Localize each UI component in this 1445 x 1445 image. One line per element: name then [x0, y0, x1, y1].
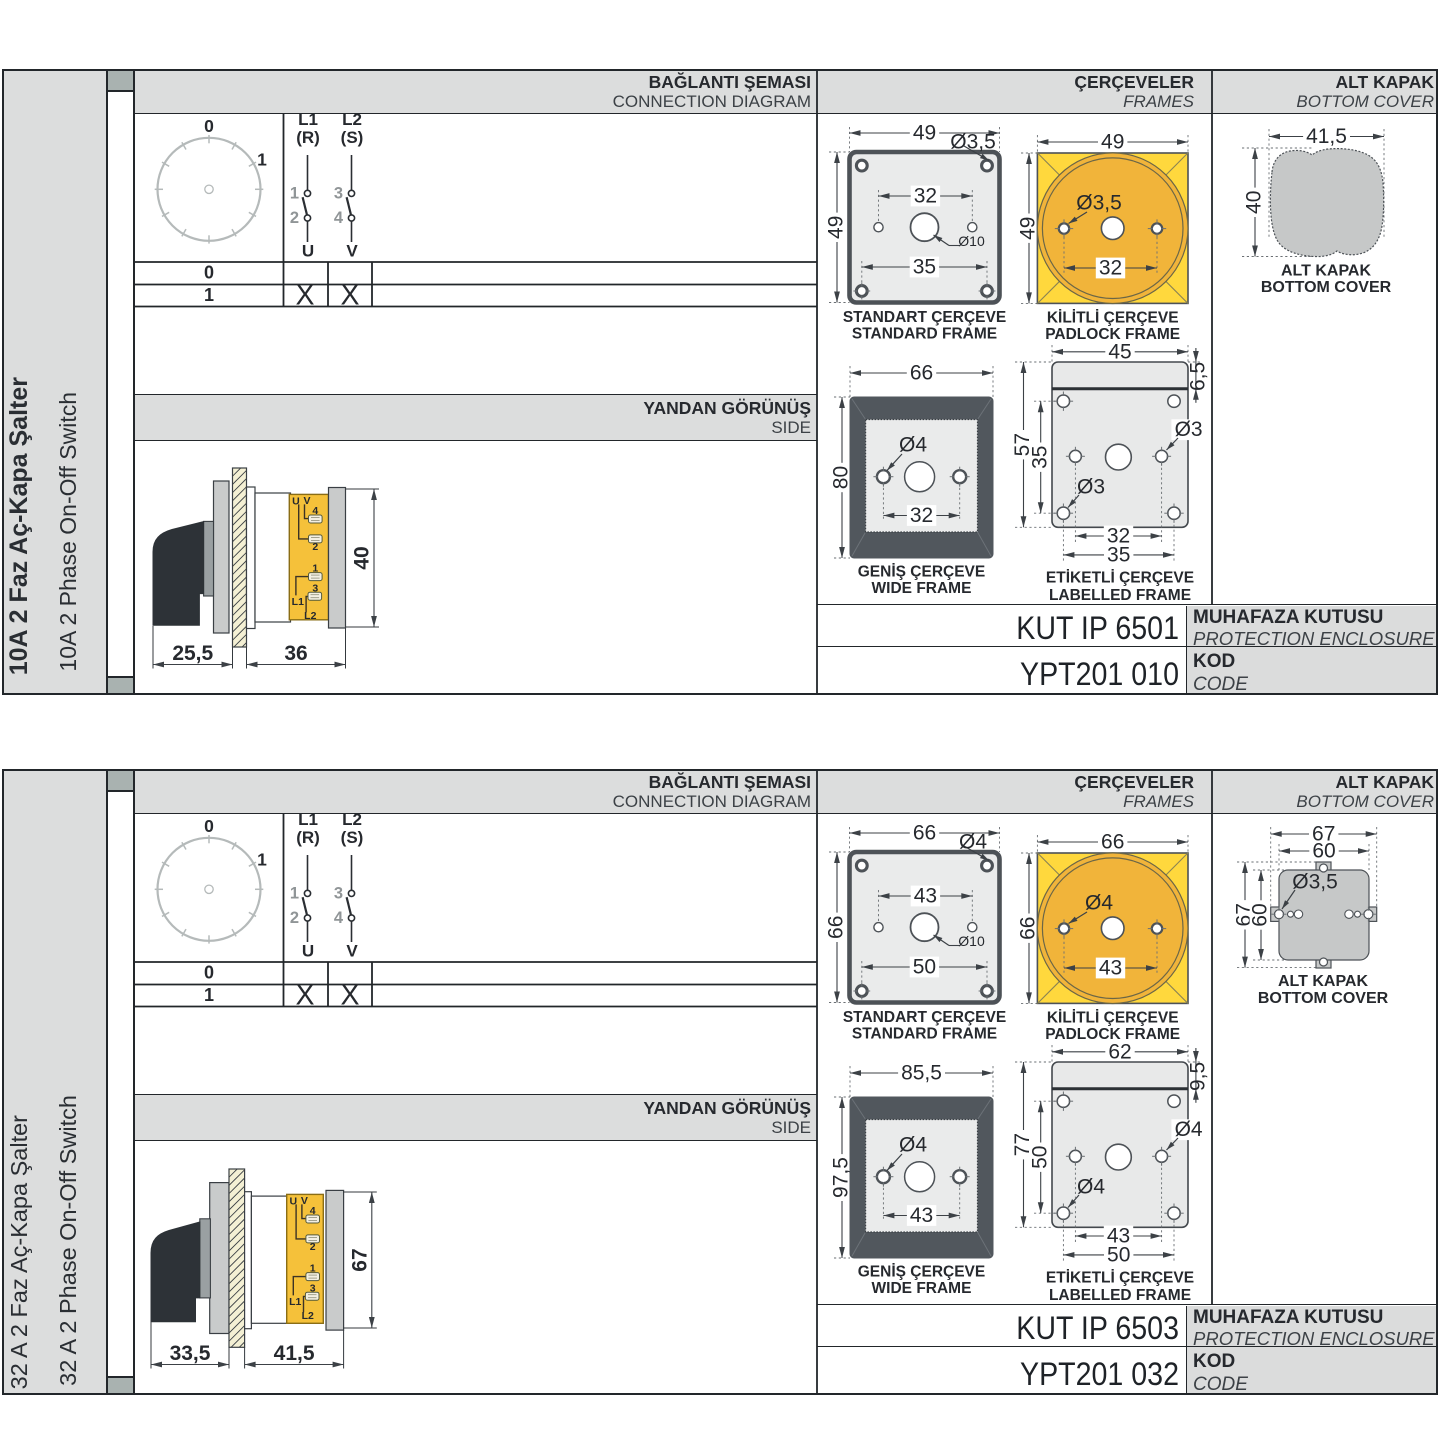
- svg-text:49: 49: [1017, 217, 1040, 240]
- svg-text:1: 1: [290, 184, 299, 202]
- svg-text:L2: L2: [342, 110, 362, 129]
- svg-text:V: V: [346, 942, 358, 961]
- svg-text:0: 0: [204, 116, 214, 136]
- svg-text:6,5: 6,5: [1187, 362, 1210, 391]
- svg-text:Ø4: Ø4: [899, 1134, 927, 1157]
- svg-text:Ø4: Ø4: [959, 831, 987, 854]
- svg-text:L1: L1: [292, 596, 304, 608]
- svg-text:3: 3: [334, 884, 343, 902]
- svg-text:Ø3: Ø3: [1077, 475, 1105, 498]
- svg-text:50: 50: [1029, 1146, 1052, 1169]
- svg-text:35: 35: [1107, 543, 1130, 566]
- svg-text:62: 62: [1108, 1040, 1131, 1063]
- svg-text:GENİŞ ÇERÇEVE: GENİŞ ÇERÇEVE: [858, 564, 985, 581]
- svg-text:1: 1: [312, 562, 318, 574]
- svg-text:L2: L2: [342, 810, 362, 829]
- svg-text:(S): (S): [341, 828, 364, 847]
- svg-text:BOTTOM COVER: BOTTOM COVER: [1261, 279, 1392, 296]
- svg-text:STANDARD FRAME: STANDARD FRAME: [852, 326, 997, 343]
- svg-text:(R): (R): [296, 828, 320, 847]
- svg-text:X: X: [340, 980, 359, 1012]
- svg-text:STANDART ÇERÇEVE: STANDART ÇERÇEVE: [843, 1009, 1006, 1026]
- svg-text:4: 4: [334, 909, 344, 927]
- svg-text:40: 40: [1243, 191, 1266, 214]
- svg-text:3: 3: [310, 1283, 316, 1295]
- svg-text:4: 4: [312, 505, 318, 517]
- svg-text:LABELLED FRAME: LABELLED FRAME: [1049, 1287, 1191, 1304]
- svg-text:33,5: 33,5: [170, 1342, 211, 1365]
- svg-text:3: 3: [312, 583, 318, 595]
- svg-text:97,5: 97,5: [830, 1157, 853, 1198]
- svg-text:KİLİTLİ ÇERÇEVE: KİLİTLİ ÇERÇEVE: [1047, 310, 1179, 327]
- svg-text:0: 0: [204, 816, 214, 836]
- svg-text:L1: L1: [289, 1296, 301, 1308]
- svg-text:L2: L2: [302, 1310, 314, 1322]
- svg-text:2: 2: [290, 909, 299, 927]
- svg-text:1: 1: [204, 985, 214, 1005]
- svg-text:32: 32: [914, 185, 937, 208]
- svg-text:35: 35: [913, 256, 936, 279]
- svg-text:60: 60: [1249, 903, 1272, 926]
- svg-text:Ø4: Ø4: [1085, 892, 1113, 915]
- svg-text:U: U: [302, 242, 314, 261]
- svg-text:36: 36: [284, 642, 307, 665]
- svg-text:(S): (S): [341, 128, 364, 147]
- svg-text:Ø10: Ø10: [958, 233, 985, 249]
- svg-text:1: 1: [290, 884, 299, 902]
- svg-text:ETİKETLİ ÇERÇEVE: ETİKETLİ ÇERÇEVE: [1046, 570, 1194, 587]
- svg-text:32: 32: [910, 504, 933, 527]
- svg-text:9,5: 9,5: [1187, 1062, 1210, 1091]
- svg-text:X: X: [295, 280, 314, 312]
- svg-text:50: 50: [913, 956, 936, 979]
- svg-text:4: 4: [334, 209, 344, 227]
- svg-text:41,5: 41,5: [1306, 125, 1347, 148]
- svg-text:Ø4: Ø4: [899, 434, 927, 457]
- svg-text:L1: L1: [298, 810, 318, 829]
- svg-text:49: 49: [825, 216, 848, 239]
- svg-text:STANDARD FRAME: STANDARD FRAME: [852, 1026, 997, 1043]
- svg-text:0: 0: [204, 963, 214, 983]
- svg-text:66: 66: [913, 822, 936, 845]
- svg-text:X: X: [340, 280, 359, 312]
- svg-text:41,5: 41,5: [274, 1342, 315, 1365]
- svg-text:43: 43: [914, 885, 937, 908]
- svg-text:Ø3,5: Ø3,5: [1292, 871, 1338, 894]
- svg-text:BOTTOM COVER: BOTTOM COVER: [1258, 990, 1389, 1007]
- svg-text:Ø3: Ø3: [1175, 418, 1203, 441]
- svg-text:4: 4: [310, 1205, 316, 1217]
- svg-text:43: 43: [910, 1204, 933, 1227]
- svg-text:1: 1: [310, 1262, 316, 1274]
- svg-text:ETİKETLİ ÇERÇEVE: ETİKETLİ ÇERÇEVE: [1046, 1270, 1194, 1287]
- svg-text:32: 32: [1099, 257, 1122, 280]
- svg-text:U: U: [302, 942, 314, 961]
- svg-text:LABELLED FRAME: LABELLED FRAME: [1049, 587, 1191, 604]
- svg-text:Ø3,5: Ø3,5: [950, 131, 996, 154]
- svg-text:KİLİTLİ ÇERÇEVE: KİLİTLİ ÇERÇEVE: [1047, 1010, 1179, 1027]
- svg-text:66: 66: [1017, 917, 1040, 940]
- svg-text:ALT KAPAK: ALT KAPAK: [1278, 973, 1369, 990]
- svg-text:2: 2: [312, 541, 318, 553]
- svg-text:67: 67: [348, 1248, 371, 1271]
- svg-text:Ø3,5: Ø3,5: [1076, 192, 1122, 215]
- svg-text:35: 35: [1029, 446, 1052, 469]
- svg-text:Ø4: Ø4: [1175, 1118, 1203, 1141]
- svg-text:40: 40: [351, 546, 374, 569]
- svg-text:25,5: 25,5: [172, 642, 213, 665]
- svg-text:66: 66: [910, 362, 933, 385]
- svg-text:80: 80: [830, 466, 853, 489]
- svg-text:L2: L2: [304, 610, 316, 622]
- svg-text:3: 3: [334, 184, 343, 202]
- svg-text:45: 45: [1108, 340, 1131, 363]
- svg-text:60: 60: [1312, 840, 1335, 863]
- svg-text:Ø10: Ø10: [958, 933, 985, 949]
- svg-text:ALT KAPAK: ALT KAPAK: [1281, 263, 1372, 280]
- svg-text:2: 2: [310, 1241, 316, 1253]
- svg-text:66: 66: [825, 916, 848, 939]
- svg-text:Ø4: Ø4: [1077, 1175, 1105, 1198]
- svg-text:(R): (R): [296, 128, 320, 147]
- svg-text:50: 50: [1107, 1243, 1130, 1266]
- svg-text:2: 2: [290, 209, 299, 227]
- svg-text:1: 1: [257, 850, 267, 870]
- svg-text:49: 49: [913, 122, 936, 145]
- svg-text:WIDE FRAME: WIDE FRAME: [872, 580, 972, 597]
- svg-text:66: 66: [1101, 831, 1124, 854]
- svg-text:1: 1: [204, 285, 214, 305]
- svg-text:85,5: 85,5: [901, 1062, 942, 1085]
- svg-text:0: 0: [204, 263, 214, 283]
- svg-text:43: 43: [1099, 957, 1122, 980]
- svg-text:1: 1: [257, 150, 267, 170]
- svg-text:GENİŞ ÇERÇEVE: GENİŞ ÇERÇEVE: [858, 1264, 985, 1281]
- svg-text:V: V: [346, 242, 358, 261]
- svg-text:49: 49: [1101, 131, 1124, 154]
- svg-text:WIDE FRAME: WIDE FRAME: [872, 1280, 972, 1297]
- svg-text:L1: L1: [298, 110, 318, 129]
- svg-text:X: X: [295, 980, 314, 1012]
- svg-text:STANDART ÇERÇEVE: STANDART ÇERÇEVE: [843, 309, 1006, 326]
